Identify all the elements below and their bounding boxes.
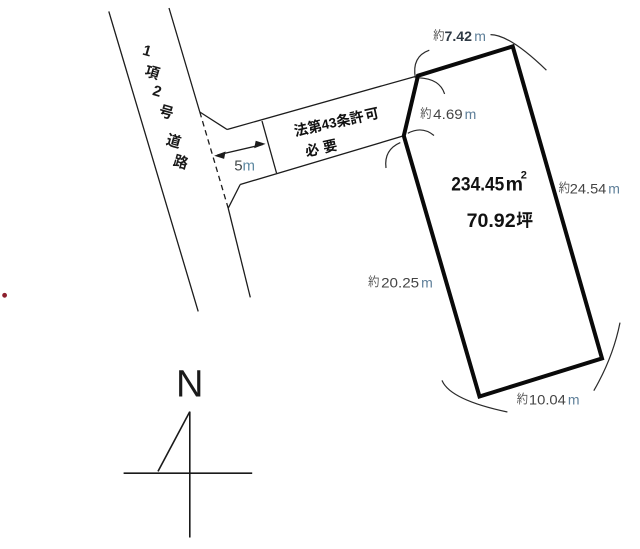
svg-text:m: m	[474, 28, 486, 44]
svg-text:m: m	[421, 274, 433, 290]
svg-text:7.42: 7.42	[445, 28, 473, 44]
svg-text:4.69: 4.69	[433, 106, 463, 122]
svg-text:2: 2	[521, 170, 527, 182]
svg-text:m: m	[568, 392, 580, 408]
svg-text:234.45: 234.45	[451, 174, 504, 196]
svg-text:24.54: 24.54	[570, 180, 607, 196]
svg-text:m: m	[608, 180, 620, 196]
svg-text:m: m	[465, 106, 477, 122]
svg-text:43: 43	[320, 115, 338, 133]
svg-text:2: 2	[151, 82, 164, 101]
svg-text:1: 1	[141, 42, 154, 61]
svg-text:N: N	[176, 364, 203, 406]
svg-text:5m: 5m	[234, 157, 255, 174]
svg-text:70.92: 70.92	[467, 210, 516, 232]
svg-text:10.04: 10.04	[529, 392, 566, 408]
svg-text:20.25: 20.25	[381, 274, 419, 290]
